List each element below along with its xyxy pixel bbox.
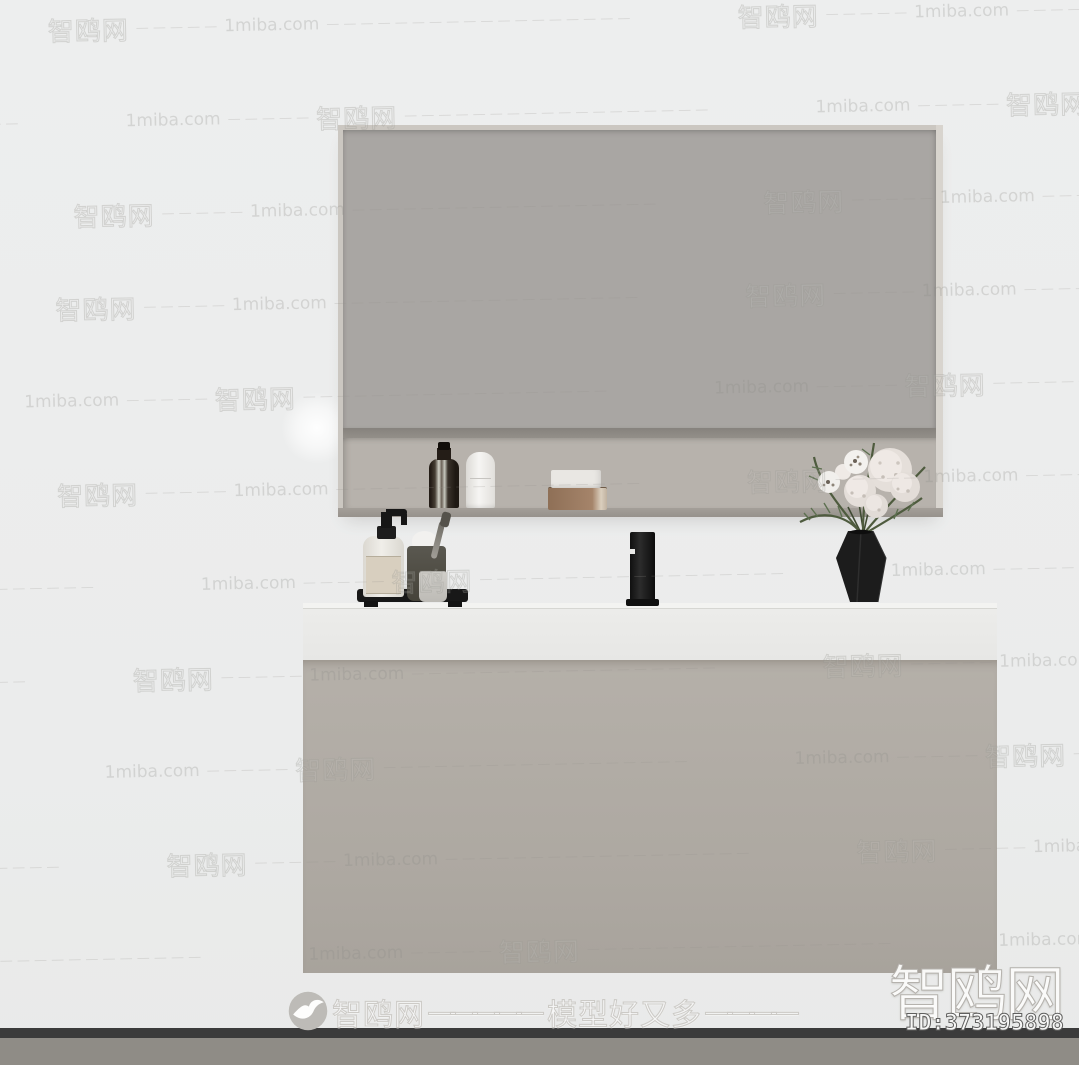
footer-brand-text: 智鸥网 [332, 990, 425, 1034]
tray-foot [448, 601, 462, 607]
footer-dashes: ————— [427, 995, 537, 1030]
footer-brand-logo [287, 990, 329, 1032]
footer-dashes: ———— [704, 995, 792, 1030]
floor-strip [0, 1038, 1079, 1065]
model-id-text: ID:373195898 [905, 1011, 1064, 1036]
tray-foot [364, 601, 378, 607]
white-box [551, 470, 601, 488]
brown-book [548, 488, 607, 510]
soap-pump-nozzle [401, 514, 407, 525]
soap-dispenser-label [366, 556, 401, 594]
footer-slogan-text: 模型好又多 [547, 990, 702, 1034]
countertop-front [303, 609, 997, 660]
mirror-surface [343, 130, 936, 428]
faucet [630, 532, 655, 602]
small-cup [419, 571, 447, 602]
faucet-base [626, 599, 659, 606]
footer-tagline: 智鸥网 ————— 模型好又多 ———— [332, 992, 802, 1032]
amber-bottle [429, 459, 459, 508]
vase-rim [850, 530, 872, 534]
white-bottle [466, 452, 495, 508]
faucet-handle-gap [630, 549, 635, 554]
flower-vase [834, 528, 888, 605]
product-render: 智鸥网— — — — —1miba.com— — — — — — — — — —… [0, 0, 1079, 1065]
vanity-cabinet-body [303, 660, 997, 973]
white-bottle-label [470, 478, 491, 479]
amber-bottle-cap [438, 442, 450, 450]
